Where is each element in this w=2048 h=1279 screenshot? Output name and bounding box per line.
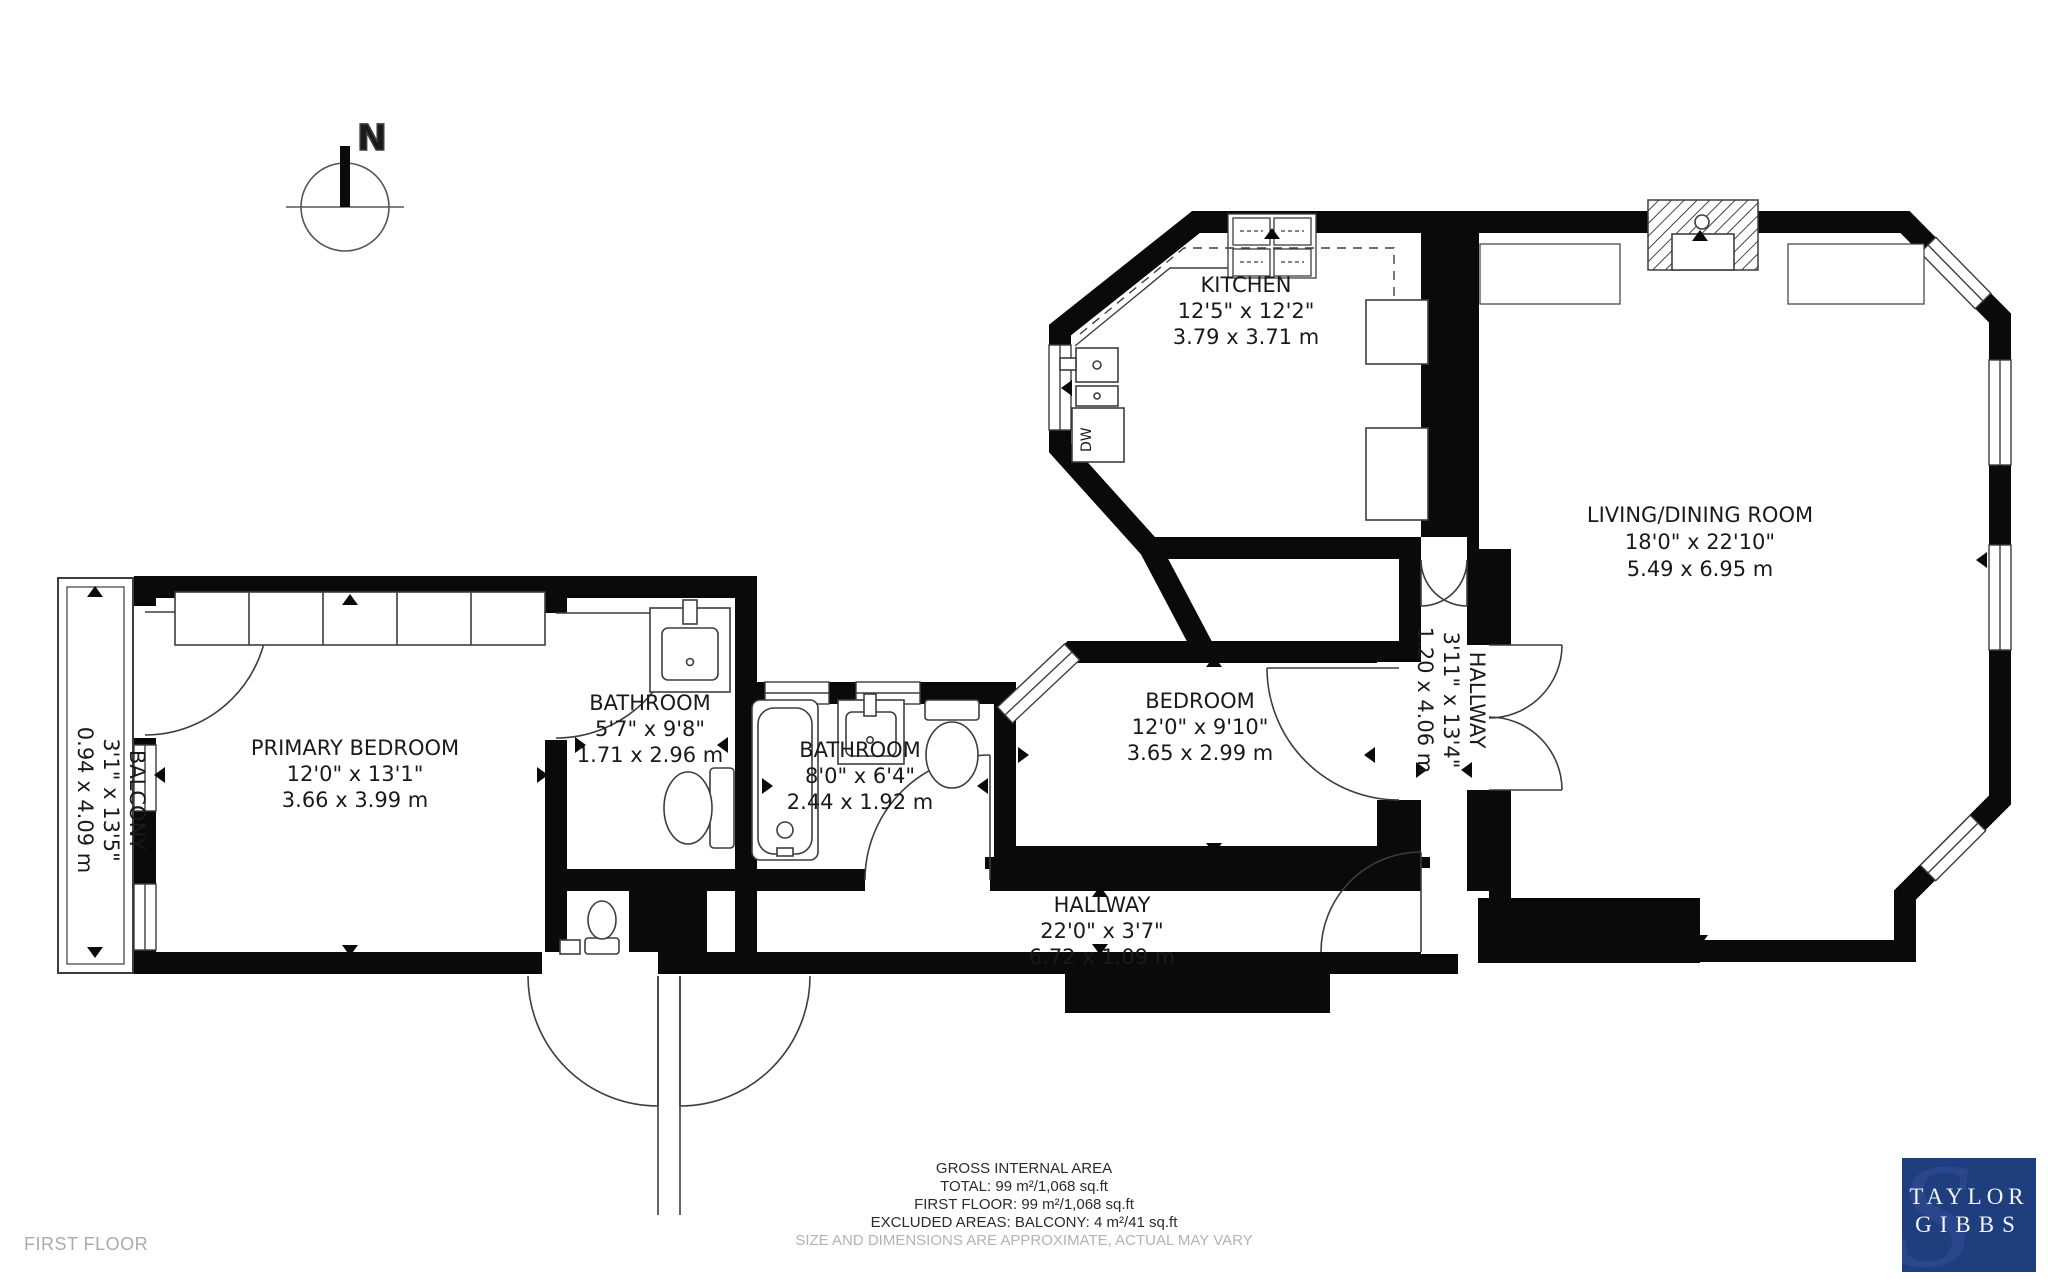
dishwasher-label: DW [1079, 427, 1095, 452]
dishwasher: DW [1072, 408, 1124, 462]
sink-bath1 [650, 600, 730, 692]
fireplace-flue [1695, 215, 1709, 229]
gross-internal-area-block: GROSS INTERNAL AREA TOTAL: 99 m²/1,068 s… [0, 1160, 2048, 1250]
stove [1228, 214, 1316, 278]
svg-text:18'0" x 22'10": 18'0" x 22'10" [1625, 530, 1775, 554]
svg-text:BATHROOM: BATHROOM [589, 691, 711, 715]
svg-text:LIVING/DINING ROOM: LIVING/DINING ROOM [1587, 503, 1813, 527]
svg-text:BALCONY: BALCONY [125, 750, 149, 850]
label-bathroom-1: BATHROOM 5'7" x 9'8" 1.71 x 2.96 m [577, 691, 723, 767]
svg-text:12'0" x 9'10": 12'0" x 9'10" [1132, 715, 1269, 739]
logo-line2: GIBBS [1902, 1212, 2036, 1238]
svg-text:BEDROOM: BEDROOM [1145, 689, 1255, 713]
svg-text:3'1" x 13'5": 3'1" x 13'5" [99, 738, 123, 861]
svg-text:12'5" x 12'2": 12'5" x 12'2" [1178, 299, 1315, 323]
svg-text:6.72 x 1.09 m: 6.72 x 1.09 m [1029, 945, 1175, 969]
agency-logo: S TAYLOR GIBBS [1902, 1158, 2036, 1272]
toilet-bath2 [925, 700, 979, 788]
svg-text:HALLWAY: HALLWAY [1465, 652, 1489, 749]
toilet-bath1 [664, 768, 734, 848]
svg-text:3.65 x 2.99 m: 3.65 x 2.99 m [1127, 741, 1273, 765]
svg-text:3.79 x 3.71 m: 3.79 x 3.71 m [1173, 325, 1319, 349]
cupboard-right [1788, 244, 1924, 304]
svg-text:3'11" x 13'4": 3'11" x 13'4" [1439, 632, 1463, 769]
area-excluded: EXCLUDED AREAS: BALCONY: 4 m²/41 sq.ft [0, 1214, 2048, 1232]
area-total: TOTAL: 99 m²/1,068 sq.ft [0, 1178, 2048, 1196]
cupboard-left [1480, 244, 1620, 304]
svg-text:0.94 x 4.09 m: 0.94 x 4.09 m [73, 727, 97, 873]
svg-text:5.49 x 6.95 m: 5.49 x 6.95 m [1627, 557, 1773, 581]
logo-line1: TAYLOR [1902, 1184, 2036, 1210]
room-shower-nook [696, 880, 746, 963]
svg-text:3.66 x 3.99 m: 3.66 x 3.99 m [282, 788, 428, 812]
svg-text:HALLWAY: HALLWAY [1054, 893, 1151, 917]
svg-text:12'0" x 13'1": 12'0" x 13'1" [287, 762, 424, 786]
svg-text:KITCHEN: KITCHEN [1201, 273, 1292, 297]
compass-north-label: N [357, 118, 387, 159]
svg-text:8'0" x 6'4": 8'0" x 6'4" [805, 764, 915, 788]
counter-right-lower [1366, 428, 1428, 520]
svg-text:BATHROOM: BATHROOM [799, 738, 921, 762]
room-living-dining [1468, 222, 2000, 951]
svg-text:5'7" x 9'8": 5'7" x 9'8" [595, 717, 705, 741]
floor-label: FIRST FLOOR [24, 1234, 148, 1255]
label-bathroom-2: BATHROOM 8'0" x 6'4" 2.44 x 1.92 m [787, 738, 933, 814]
label-bedroom: BEDROOM 12'0" x 9'10" 3.65 x 2.99 m [1127, 689, 1273, 765]
svg-text:PRIMARY BEDROOM: PRIMARY BEDROOM [251, 736, 459, 760]
disclaimer: SIZE AND DIMENSIONS ARE APPROXIMATE, ACT… [0, 1232, 2048, 1250]
svg-text:22'0" x 3'7": 22'0" x 3'7" [1040, 919, 1163, 943]
svg-text:2.44 x 1.92 m: 2.44 x 1.92 m [787, 790, 933, 814]
svg-text:1.71 x 2.96 m: 1.71 x 2.96 m [577, 743, 723, 767]
floor-plan: N [0, 0, 2048, 1279]
area-title: GROSS INTERNAL AREA [0, 1160, 2048, 1178]
compass: N [286, 118, 404, 251]
counter-right-upper [1366, 300, 1428, 364]
area-first-floor: FIRST FLOOR: 99 m²/1,068 sq.ft [0, 1196, 2048, 1214]
floorplan-page: { "floor_label": "FIRST FLOOR", "compass… [0, 0, 2048, 1279]
svg-text:1.20 x 4.06 m: 1.20 x 4.06 m [1413, 627, 1437, 773]
closet [175, 592, 545, 645]
kitchen-bedroom-wall [1150, 548, 1205, 652]
